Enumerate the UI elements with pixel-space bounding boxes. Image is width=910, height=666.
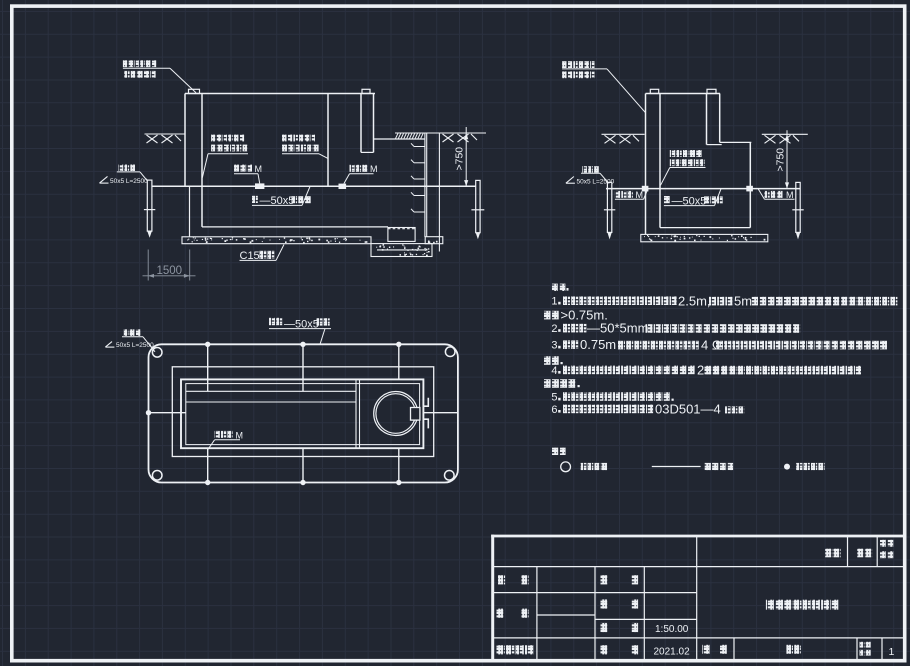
svg-text:M: M	[370, 164, 378, 174]
svg-text:50x5 L=2500: 50x5 L=2500	[116, 342, 154, 349]
svg-text:6: 6	[551, 404, 557, 416]
svg-text:1500: 1500	[157, 265, 183, 277]
svg-text:5m: 5m	[734, 293, 752, 308]
svg-text:4: 4	[551, 365, 557, 377]
svg-text:M: M	[786, 190, 794, 200]
svg-text:>750: >750	[454, 147, 466, 171]
svg-text:2: 2	[551, 323, 557, 335]
svg-text:>750: >750	[775, 148, 787, 172]
svg-text:M: M	[236, 430, 244, 440]
svg-text:2.5m,: 2.5m,	[678, 293, 711, 308]
svg-text:50x5 L=2500: 50x5 L=2500	[110, 178, 148, 185]
svg-text:3: 3	[551, 340, 557, 352]
svg-text:0.75m: 0.75m	[580, 337, 616, 352]
svg-text:1: 1	[551, 296, 557, 308]
svg-text:2: 2	[697, 362, 704, 377]
svg-text:1:50.00: 1:50.00	[655, 624, 689, 635]
svg-text:2021.02: 2021.02	[654, 647, 691, 658]
svg-text:M: M	[636, 190, 644, 200]
svg-text:—50*5mm: —50*5mm	[587, 321, 648, 336]
svg-text:50x5 L=2500: 50x5 L=2500	[577, 178, 615, 185]
svg-text:5: 5	[551, 392, 557, 404]
svg-text:M: M	[255, 164, 263, 174]
svg-text:1: 1	[889, 646, 895, 658]
svg-text:03D501—4: 03D501—4	[655, 401, 721, 416]
